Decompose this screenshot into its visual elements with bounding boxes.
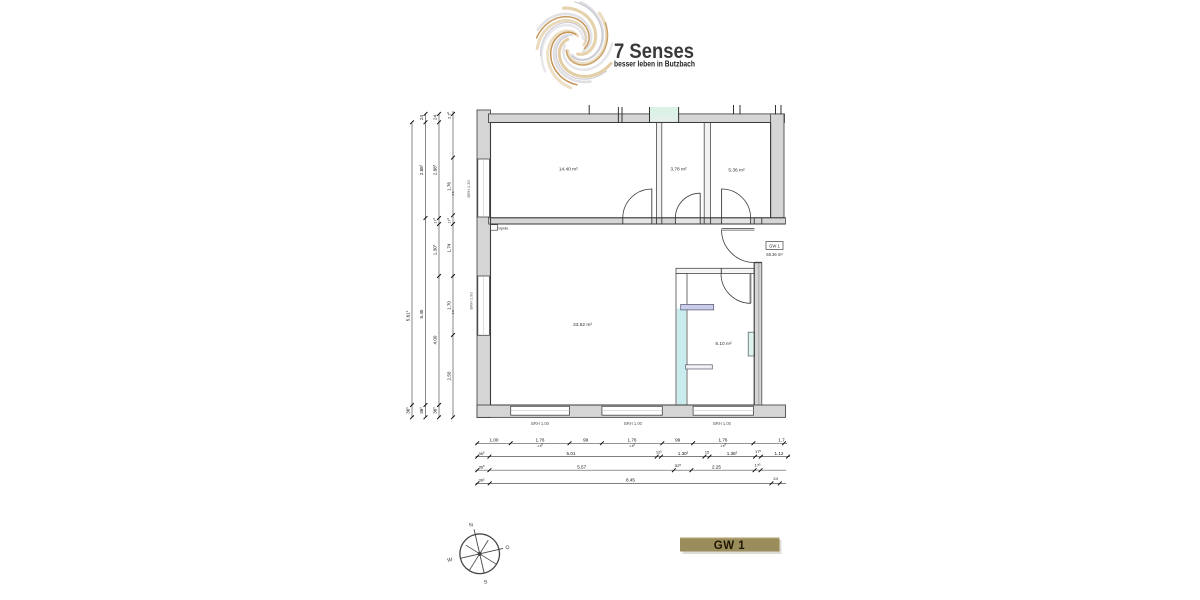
- svg-text:365: 365: [405, 407, 410, 414]
- svg-text:1.76: 1.76: [446, 182, 451, 191]
- svg-text:2.50: 2.50: [446, 371, 451, 380]
- svg-text:99: 99: [675, 438, 681, 443]
- svg-text:3.78 m²: 3.78 m²: [670, 166, 687, 172]
- svg-text:2.885: 2.885: [432, 164, 437, 175]
- svg-text:4.00: 4.00: [432, 335, 437, 344]
- svg-text:1.76: 1.76: [719, 438, 728, 443]
- svg-text:5.45: 5.45: [419, 309, 424, 318]
- svg-text:1.5: 1.5: [451, 191, 455, 196]
- svg-text:1.58: 1.58: [629, 443, 635, 448]
- svg-text:365: 365: [419, 407, 424, 414]
- svg-text:2.26: 2.26: [446, 111, 451, 119]
- svg-text:14.40 m²: 14.40 m²: [559, 166, 578, 172]
- svg-text:525: 525: [675, 463, 681, 468]
- svg-text:1.305: 1.305: [432, 244, 437, 255]
- svg-text:1.74: 1.74: [446, 243, 451, 252]
- svg-text:2.885: 2.885: [419, 164, 424, 175]
- svg-text:1.00: 1.00: [490, 438, 499, 443]
- svg-text:5.36 m²: 5.36 m²: [728, 168, 745, 174]
- svg-text:33.52 m²: 33.52 m²: [573, 322, 592, 328]
- svg-text:175: 175: [446, 217, 451, 223]
- svg-text:8.10 m²: 8.10 m²: [715, 341, 732, 347]
- svg-text:175: 175: [432, 217, 437, 223]
- svg-text:24: 24: [773, 476, 778, 481]
- svg-text:365: 365: [479, 451, 485, 456]
- svg-text:1.5: 1.5: [451, 310, 455, 315]
- svg-text:BRH 1.30: BRH 1.30: [466, 180, 471, 198]
- svg-text:175: 175: [755, 449, 761, 454]
- svg-text:125: 125: [656, 449, 662, 454]
- svg-text:BRH 1.00: BRH 1.00: [531, 421, 549, 426]
- svg-text:S: S: [483, 579, 488, 586]
- svg-text:GW 1: GW 1: [714, 540, 745, 552]
- svg-text:1.58: 1.58: [537, 443, 543, 448]
- svg-text:W: W: [447, 557, 453, 564]
- svg-text:24: 24: [432, 115, 437, 121]
- svg-text:1.7: 1.7: [778, 438, 785, 443]
- svg-text:2.25: 2.25: [712, 464, 721, 469]
- svg-text:N: N: [469, 522, 474, 529]
- svg-text:1.76: 1.76: [536, 438, 545, 443]
- svg-text:1.58: 1.58: [720, 443, 726, 448]
- svg-text:1.365: 1.365: [727, 451, 738, 456]
- svg-text:5.615: 5.615: [405, 310, 410, 321]
- svg-text:365: 365: [479, 464, 485, 469]
- svg-text:99: 99: [583, 438, 589, 443]
- svg-text:8.45: 8.45: [626, 478, 635, 483]
- svg-text:BRH 1.90: BRH 1.90: [469, 292, 474, 310]
- svg-text:1.76: 1.76: [628, 438, 637, 443]
- svg-text:O: O: [505, 545, 510, 552]
- svg-text:1.12: 1.12: [775, 451, 784, 456]
- svg-text:365: 365: [432, 407, 437, 414]
- svg-text:1.305: 1.305: [678, 451, 689, 456]
- svg-text:5.01: 5.01: [567, 451, 576, 456]
- svg-text:365: 365: [479, 477, 485, 482]
- svg-text:15: 15: [705, 450, 710, 455]
- svg-text:1.70: 1.70: [446, 301, 451, 310]
- svg-text:GW 1: GW 1: [769, 244, 780, 249]
- svg-text:175: 175: [755, 462, 761, 467]
- svg-text:Spüle: Spüle: [498, 225, 509, 230]
- svg-text:5.57: 5.57: [577, 464, 586, 469]
- svg-text:BRH 1.00: BRH 1.00: [713, 421, 731, 426]
- svg-text:66.36 m²: 66.36 m²: [766, 252, 783, 257]
- svg-text:BRH 1.00: BRH 1.00: [624, 421, 642, 426]
- svg-text:24: 24: [419, 115, 424, 121]
- svg-text:besser leben in Butzbach: besser leben in Butzbach: [614, 59, 695, 68]
